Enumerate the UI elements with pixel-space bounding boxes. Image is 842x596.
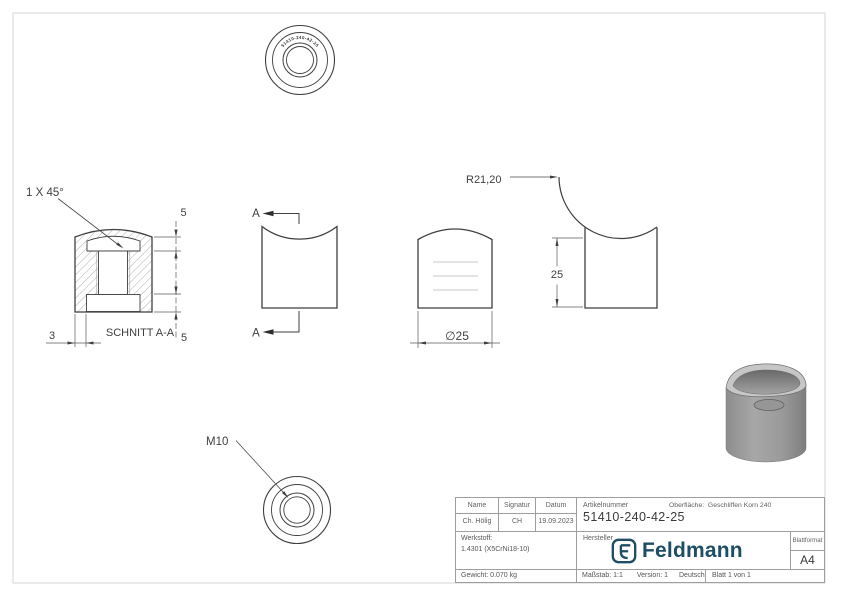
blatt-value: Blatt 1 von 1 — [706, 569, 790, 582]
datum-value: 19.09.2023 — [536, 513, 576, 530]
blattformat-label: Blattformat — [791, 531, 824, 550]
dim-bottom-5: 5 — [181, 332, 187, 344]
feldmann-logo-icon — [611, 538, 637, 564]
oberflaeche-label: Oberfläche: — [669, 502, 704, 509]
version-value: Version: 1 — [637, 572, 668, 579]
signatur-header: Signatur — [499, 498, 535, 512]
oberflaeche-value: Geschliffen Korn 240 — [708, 502, 771, 509]
massstab-value: Maßstab: 1:1 — [582, 572, 623, 579]
title-block: Name Signatur Datum Ch. Hölig CH 19.09.2… — [455, 497, 825, 583]
werkstoff-label: Werkstoff: — [461, 535, 576, 542]
name-value: Ch. Hölig — [456, 513, 498, 530]
dim-top-5: 5 — [180, 207, 186, 219]
feldmann-wordmark: Feldmann — [642, 539, 743, 563]
thread-callout: M10 — [206, 436, 228, 448]
drawing-sheet: 51410-240-42-25 1 X 45° 5 5 — [0, 0, 842, 596]
view-front-diameter: ∅25 — [410, 229, 500, 348]
blattformat-value: A4 — [791, 551, 824, 569]
section-mark-bottom: A — [252, 328, 260, 340]
artikelnummer-label: Artikelnummer — [583, 502, 628, 509]
dim-height-25: 25 — [551, 269, 563, 281]
dim-wall-3: 3 — [49, 330, 55, 342]
part-3d-render — [726, 364, 806, 462]
dim-radius: R21,20 — [466, 174, 501, 186]
dim-diameter: ∅25 — [445, 329, 469, 343]
view-bottom-thread: M10 — [206, 436, 331, 544]
signatur-value: CH — [499, 513, 535, 530]
sprache-value: Deutsch — [679, 572, 705, 579]
chamfer-note: 1 X 45° — [26, 187, 64, 199]
name-header: Name — [456, 498, 498, 512]
hersteller-label: Hersteller — [583, 535, 613, 542]
view-right-radius: R21,20 25 — [466, 174, 657, 308]
view-section-a-a: 1 X 45° 5 5 3 SCHNITT A-A — [26, 187, 187, 347]
artikelnummer-value: 51410-240-42-25 — [583, 510, 685, 524]
view-top-circular: 51410-240-42-25 — [266, 26, 335, 95]
section-mark-top: A — [252, 208, 260, 220]
feldmann-logo: Feldmann — [611, 538, 743, 564]
werkstoff-value: 1.4301 (X5CrNi18-10) — [461, 546, 576, 553]
section-title: SCHNITT A-A — [106, 327, 175, 339]
datum-header: Datum — [536, 498, 576, 512]
gewicht-value: Gewicht: 0.070 kg — [456, 569, 576, 582]
view-side-saddle: A A — [252, 208, 337, 340]
